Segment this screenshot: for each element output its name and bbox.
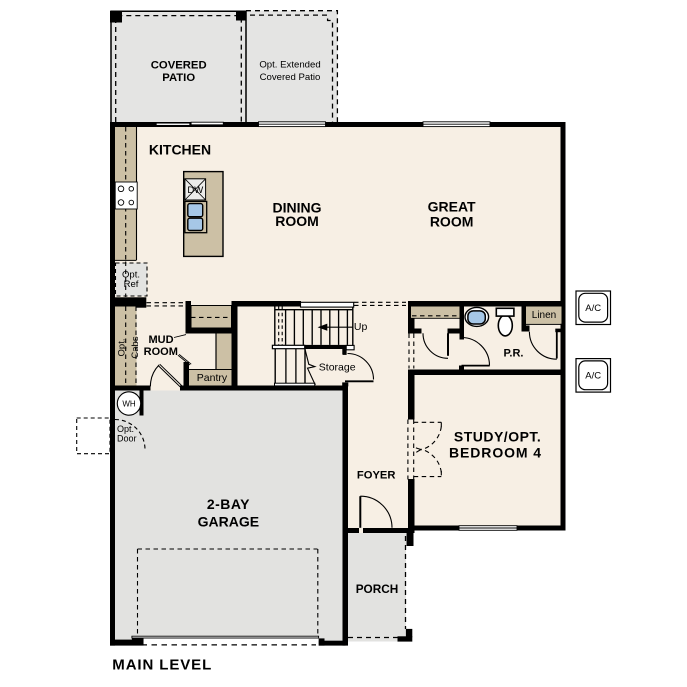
svg-text:BEDROOM 4: BEDROOM 4 <box>449 444 542 460</box>
svg-text:PATIO: PATIO <box>162 72 195 84</box>
svg-text:Opt.: Opt. <box>117 424 134 434</box>
svg-text:Up: Up <box>354 321 368 333</box>
svg-text:COVERED: COVERED <box>151 60 207 72</box>
svg-text:FOYER: FOYER <box>357 470 396 482</box>
svg-text:2-BAY: 2-BAY <box>207 496 250 512</box>
svg-text:KITCHEN: KITCHEN <box>149 142 211 158</box>
svg-text:MAIN LEVEL: MAIN LEVEL <box>112 656 212 673</box>
svg-text:PORCH: PORCH <box>356 582 399 596</box>
svg-text:WH: WH <box>122 399 136 408</box>
svg-text:ROOM: ROOM <box>275 213 319 229</box>
svg-text:Storage: Storage <box>319 362 356 374</box>
svg-text:P.R.: P.R. <box>504 348 524 360</box>
svg-text:Linen: Linen <box>532 310 556 321</box>
svg-text:MUD: MUD <box>148 334 173 346</box>
svg-text:Opt. Extended: Opt. Extended <box>259 60 320 71</box>
svg-text:Cabs: Cabs <box>130 336 141 358</box>
svg-text:ROOM: ROOM <box>430 214 474 230</box>
svg-text:Pantry: Pantry <box>197 372 228 384</box>
svg-text:DW: DW <box>187 185 203 196</box>
svg-text:A/C: A/C <box>585 371 601 382</box>
svg-text:ROOM: ROOM <box>144 346 178 358</box>
svg-text:Door: Door <box>117 434 137 444</box>
svg-text:A/C: A/C <box>585 303 601 314</box>
svg-text:Opt.: Opt. <box>116 339 127 357</box>
svg-text:GREAT: GREAT <box>428 198 476 214</box>
svg-text:STUDY/OPT.: STUDY/OPT. <box>454 429 541 445</box>
svg-text:Ref: Ref <box>124 279 139 290</box>
svg-text:GARAGE: GARAGE <box>198 514 259 530</box>
svg-text:Covered Patio: Covered Patio <box>260 72 321 83</box>
